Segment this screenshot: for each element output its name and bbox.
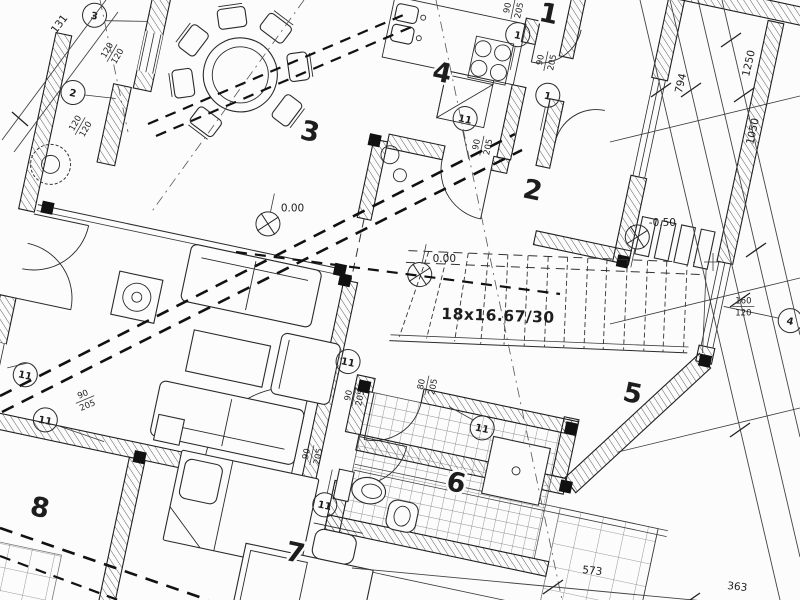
dim-bottom-573: 573 bbox=[582, 564, 603, 578]
level-value: 0.00 bbox=[433, 253, 456, 265]
pillow bbox=[178, 458, 223, 505]
armchair bbox=[270, 332, 342, 405]
shower-base bbox=[482, 436, 551, 505]
level-value: -0.50 bbox=[649, 217, 676, 229]
nightstand bbox=[154, 414, 185, 445]
side-table-plant bbox=[111, 271, 163, 323]
floor-plan-drawing: 18x16.67/30 bbox=[0, 0, 800, 600]
bidet bbox=[384, 498, 420, 534]
dim-bottom-363: 363 bbox=[727, 580, 748, 594]
blueprint-scan: { "plan": { "rooms": [ {"number":"1"},{"… bbox=[0, 0, 800, 600]
level-value: 0.00 bbox=[281, 202, 304, 214]
